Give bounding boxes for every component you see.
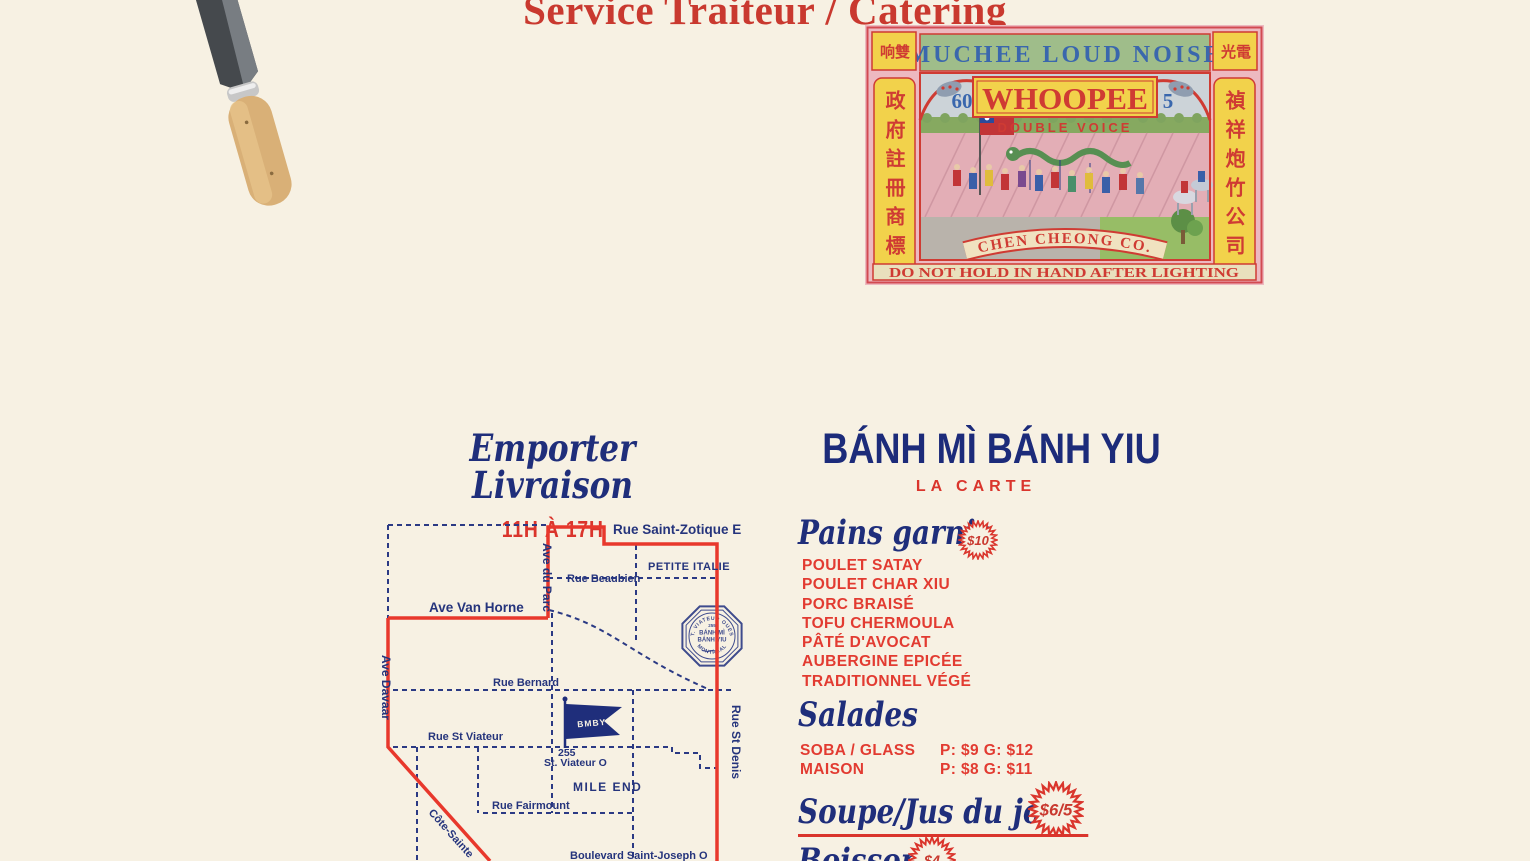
section-title-salades: Salades <box>798 698 944 732</box>
street-rue-saint-zotique: Rue Saint-Zotique E <box>613 522 741 537</box>
menu-item: PÂTÉ D'AVOCAT <box>802 633 971 652</box>
pains-garnis-price-text: $10 <box>966 533 989 548</box>
street-ave-du-parc: Ave du Parc <box>540 543 554 612</box>
stamp-name-line1: BÁNH MÌ <box>699 629 725 637</box>
area-petite-italie: PETITE ITALIE <box>648 561 730 573</box>
knife-image <box>150 0 360 260</box>
menu-item: POULET SATAY <box>802 556 971 575</box>
label-subtitle: DOUBLE VOICE <box>998 120 1133 135</box>
takeout-title: Emporter Livraison <box>380 430 725 504</box>
boissons-price-badge: $4 <box>908 836 956 861</box>
salad-name: SOBA / GLASS <box>800 741 915 760</box>
boissons-price-text: $4 <box>923 853 940 861</box>
salad-price: P: $8 G: $11 <box>940 760 1033 779</box>
salad-name: MAISON <box>800 760 864 779</box>
pains-garnis-items: POULET SATAY POULET CHAR XIU PORC BRAISÉ… <box>802 556 971 691</box>
firecracker-label-image: MUCHEE LOUD NOISE WHOOPEE 60 5 DOUBLE VO… <box>865 25 1264 285</box>
menu-title-text: BÁNH MÌ BÁNH YIU <box>822 428 1160 471</box>
menu-item: AUBERGINE EPICÉE <box>802 652 971 671</box>
label-corner-top-right-chars: 光電 <box>1215 41 1257 62</box>
stamp-arc-bottom: MONTRÉAL <box>696 643 729 655</box>
street-rue-st-denis: Rue St Denis <box>729 705 743 779</box>
takeout-title-text: Emporter Livraison <box>408 430 698 504</box>
label-right-column-chars: 禎祥炮竹公司 <box>1223 87 1243 267</box>
soupe-price-badge: $6/5 <box>1028 781 1084 837</box>
label-number-left: 60 <box>952 89 973 113</box>
stamp-number: 255 <box>708 623 716 628</box>
street-rue-fairmount: Rue Fairmount <box>492 800 570 812</box>
street-rue-st-viateur: Rue St Viateur <box>428 731 504 743</box>
street-ave-davaar: Ave Davaar <box>379 655 393 720</box>
label-left-column-chars: 政府註冊商標 <box>883 87 903 267</box>
label-brand-text: MUCHEE LOUD NOISE <box>907 42 1222 68</box>
menu-item: TRADITIONNEL VÉGÉ <box>802 672 971 691</box>
menu-item: POULET CHAR XIU <box>802 575 971 594</box>
section-title-soupe: Soupe/Jus du jour <box>798 795 1152 837</box>
street-rue-beaubien: Rue Beaubien <box>567 573 641 585</box>
soupe-price-text: $6/5 <box>1039 800 1073 819</box>
salad-price: P: $9 G: $12 <box>940 741 1034 760</box>
firecracker-label-art: MUCHEE LOUD NOISE WHOOPEE 60 5 DOUBLE VO… <box>865 25 1264 285</box>
label-product-name: WHOOPEE <box>982 81 1148 116</box>
street-rue-bernard: Rue Bernard <box>493 677 559 689</box>
svg-text:MONTRÉAL: MONTRÉAL <box>696 643 729 655</box>
delivery-zone-map: ST. VIATEUR OUEST 255 BÁNH MÌ BÁNH YIU M… <box>370 520 770 861</box>
menu-item: PORC BRAISÉ <box>802 595 971 614</box>
stamp-name-line2: BÁNH YIU <box>698 637 727 644</box>
salades-title-text: Salades <box>798 698 918 732</box>
menu-title: BÁNH MÌ BÁNH YIU <box>790 428 1162 471</box>
area-mile-end: MILE END <box>573 780 642 794</box>
section-title-pains-garnis: Pains garnis <box>798 516 1034 550</box>
label-corner-top-left-chars: 响雙 <box>874 41 916 62</box>
label-warning: DO NOT HOLD IN HAND AFTER LIGHTING <box>889 266 1239 281</box>
map-address-street: St. Viateur O <box>544 757 607 769</box>
pains-garnis-price-badge: $10 <box>958 520 998 560</box>
street-ave-van-horne: Ave Van Horne <box>429 600 524 615</box>
street-boulevard-saint-joseph: Boulevard Saint-Joseph O <box>570 850 708 861</box>
label-number-right: 5 <box>1163 89 1174 113</box>
menu-subtitle: LA CARTE <box>790 478 1162 496</box>
menu-item: TOFU CHERMOULA <box>802 614 971 633</box>
